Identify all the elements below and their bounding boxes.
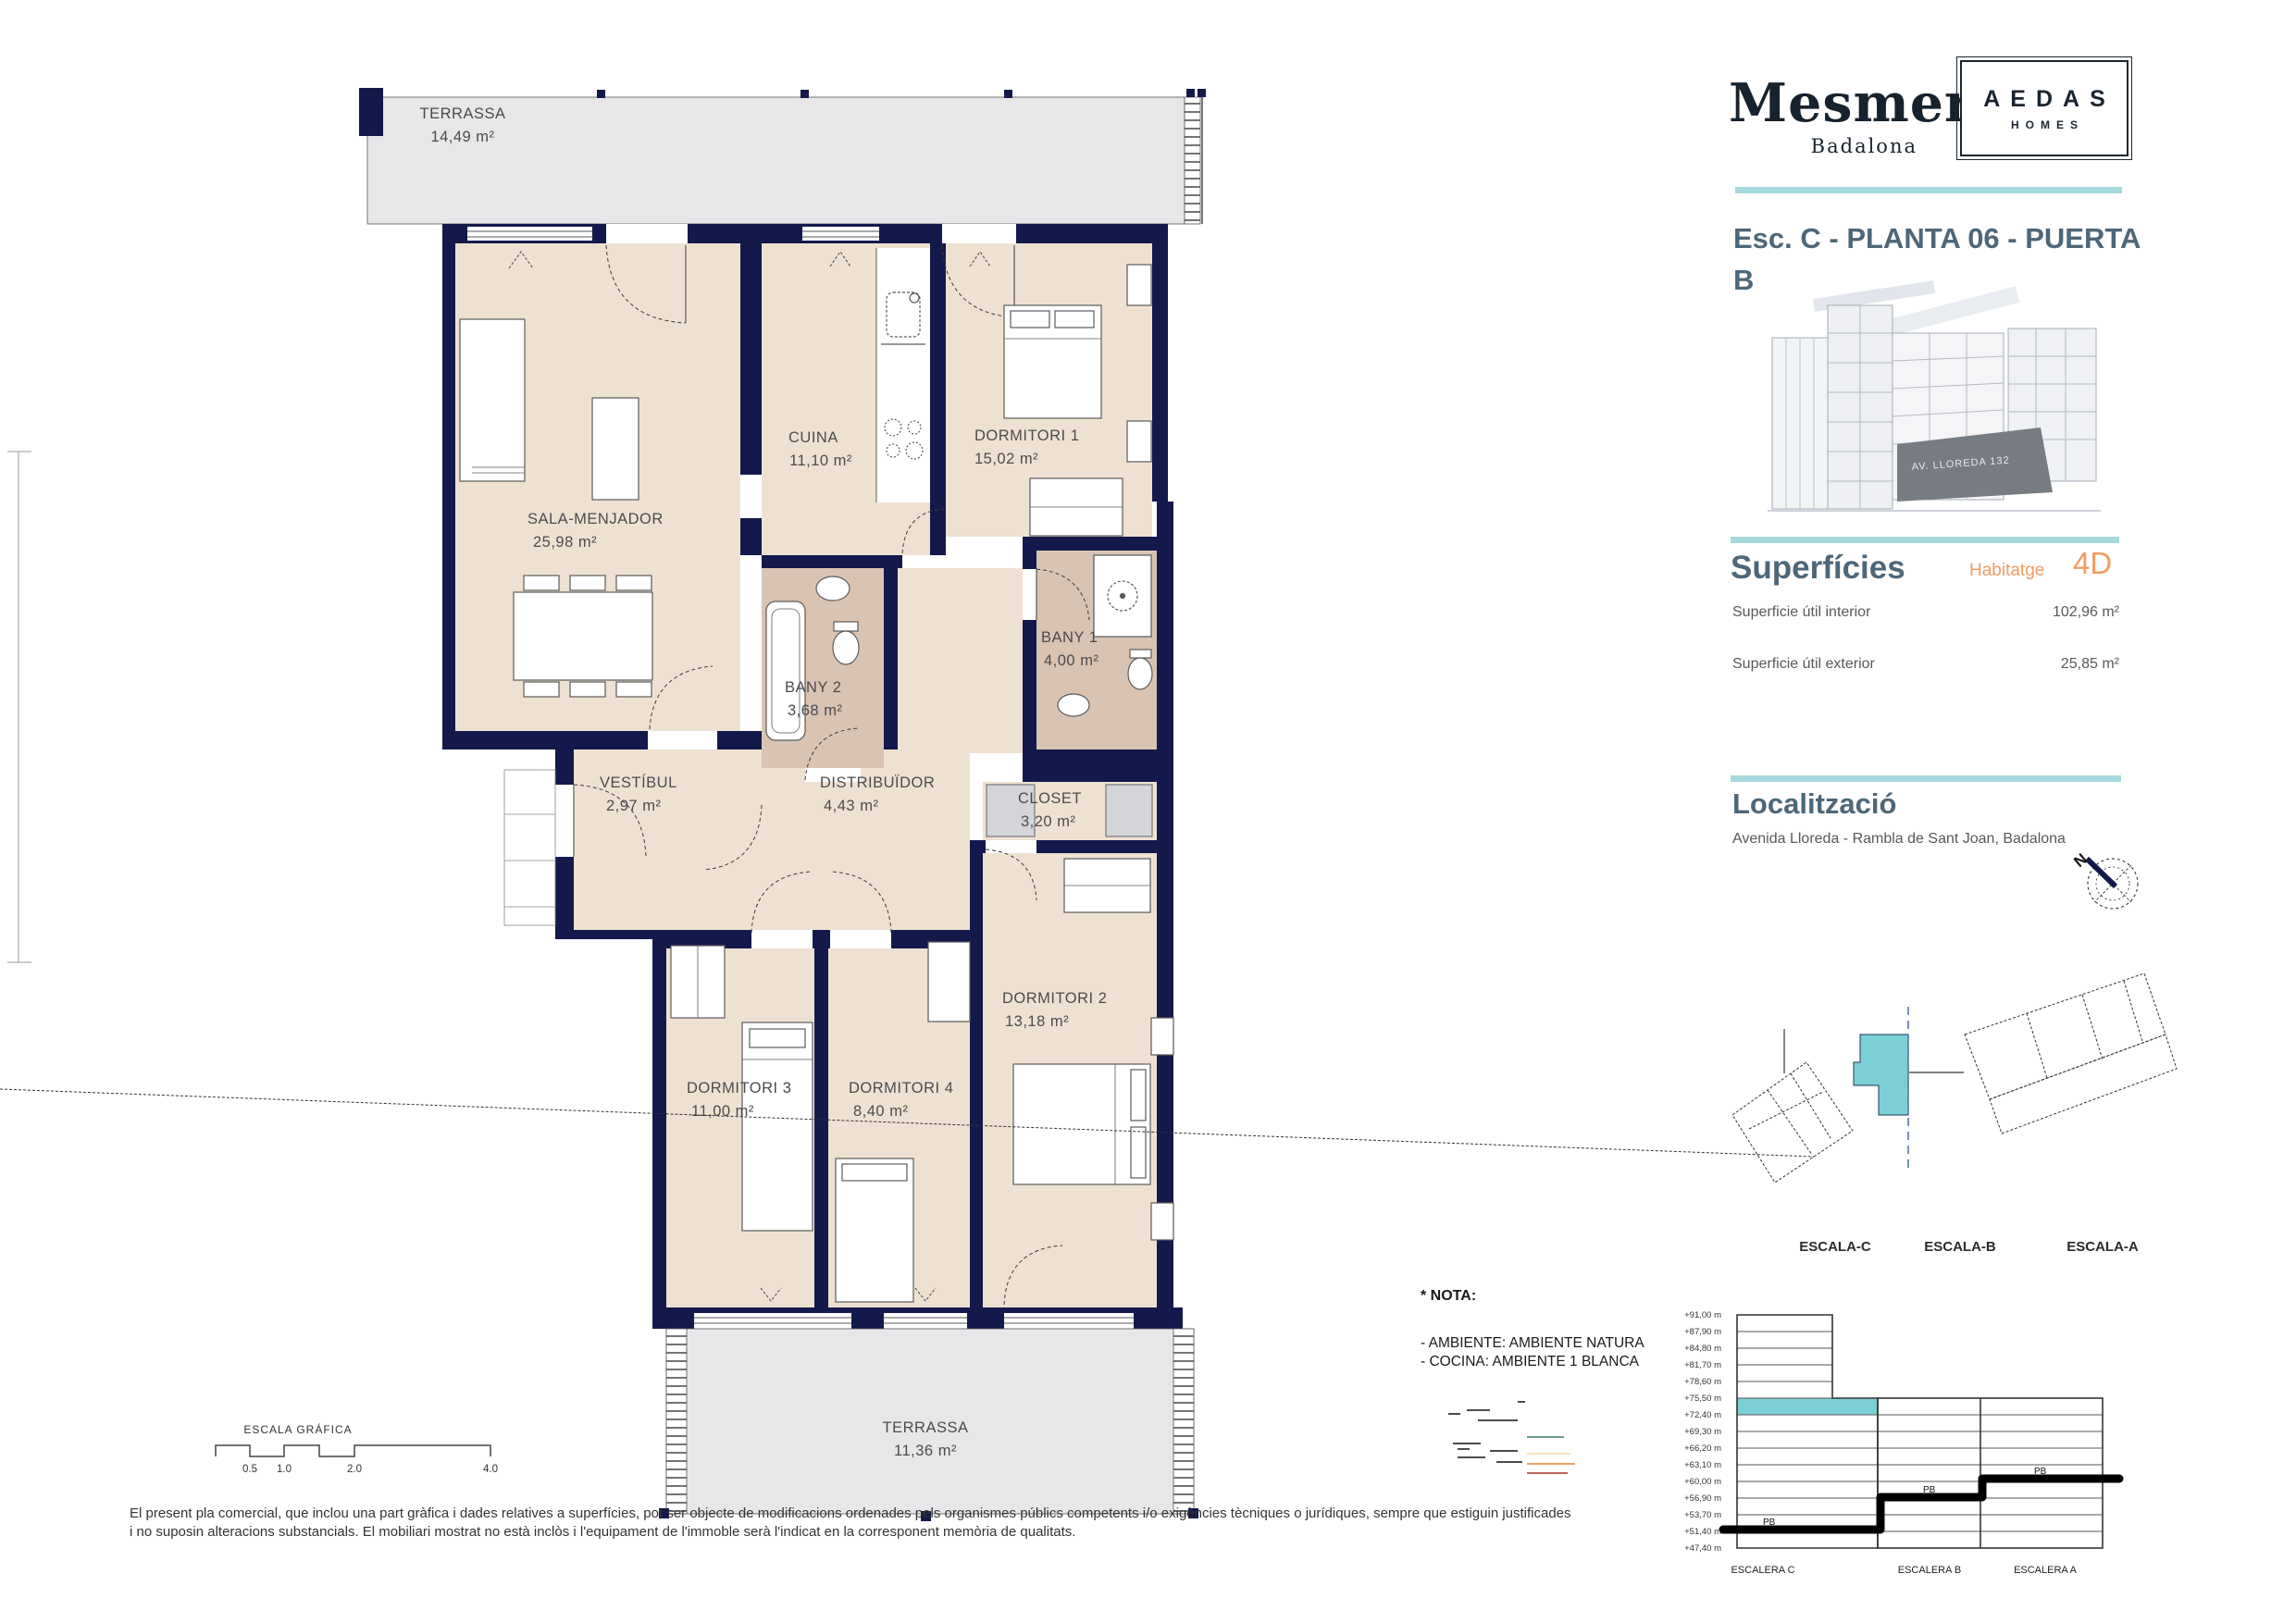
room-label-sala: SALA-MENJADOR <box>527 511 664 527</box>
room-label-closet: CLOSET <box>1018 790 1082 807</box>
superficies-row-exterior-label: Superficie útil exterior <box>1732 656 1875 673</box>
unit-type-value: 4D <box>2073 546 2112 581</box>
superficies-row-interior: Superficie útil interior 102,96 m² <box>1732 604 2119 621</box>
room-area-sala: 25,98 m² <box>533 534 597 551</box>
svg-text:+72,40 m: +72,40 m <box>1684 1410 1721 1420</box>
building-sketch: AV. LLOREDA 132 <box>1768 287 2101 511</box>
graphic-scale: ESCALA GRÁFICA 0.5 1.0 2.0 4.0 <box>216 1422 498 1475</box>
svg-text:+87,90 m: +87,90 m <box>1684 1327 1721 1337</box>
elevation-label-escalera-a: ESCALERA A <box>2014 1565 2078 1576</box>
brand-logo: Mesmer <box>1729 72 1973 134</box>
divider-rule-3 <box>1731 775 2121 782</box>
room-area-dormitori1: 15,02 m² <box>974 451 1038 467</box>
nota-heading: * NOTA: <box>1421 1288 1644 1305</box>
superficies-heading: Superfícies <box>1731 550 1905 587</box>
site-label-escala-b: ESCALA-B <box>1924 1239 1996 1255</box>
room-label-terrassa-bottom: TERRASSA <box>883 1419 969 1436</box>
room-area-terrassa-top: 14,49 m² <box>430 129 494 145</box>
aedas-logo: AEDAS HOMES <box>1960 60 2128 156</box>
pb-label-c: PB <box>1763 1518 1776 1528</box>
room-area-vestibul: 2,97 m² <box>606 798 661 814</box>
divider-rule-1 <box>1735 187 2122 193</box>
elevation-label-escalera-c: ESCALERA C <box>1731 1565 1794 1576</box>
elevation-diagram: +91,00 m +87,90 m +84,80 m +81,70 m +78,… <box>1684 1310 2119 1576</box>
compass-icon: N <box>2070 850 2138 909</box>
svg-text:+63,10 m: +63,10 m <box>1684 1460 1721 1470</box>
svg-text:+66,20 m: +66,20 m <box>1684 1443 1721 1454</box>
scale-tick-40: 4.0 <box>483 1464 498 1475</box>
brand-logo-text: Mesmer <box>1729 72 1973 134</box>
windows-bottom <box>694 1313 1134 1329</box>
compass-north-label: N <box>2070 850 2091 871</box>
room-area-bany2: 3,68 m² <box>788 702 842 719</box>
room-label-dormitori1: DORMITORI 1 <box>974 427 1079 444</box>
site-label-escala-c: ESCALA-C <box>1799 1239 1871 1255</box>
room-label-dormitori2: DORMITORI 2 <box>1002 990 1107 1007</box>
room-area-terrassa-bottom: 11,36 m² <box>894 1443 957 1459</box>
elevation-heights: +91,00 m +87,90 m +84,80 m +81,70 m +78,… <box>1684 1310 1721 1554</box>
svg-text:+60,00 m: +60,00 m <box>1684 1477 1721 1487</box>
nota-line-2: - COCINA: AMBIENTE 1 BLANCA <box>1421 1353 1644 1371</box>
svg-text:+78,60 m: +78,60 m <box>1684 1377 1721 1387</box>
graphic-scale-title: ESCALA GRÁFICA <box>243 1422 352 1436</box>
room-label-terrassa-top: TERRASSA <box>420 105 506 122</box>
site-label-escala-a: ESCALA-A <box>2066 1239 2139 1255</box>
svg-text:+47,40 m: +47,40 m <box>1684 1543 1721 1554</box>
room-area-bany1: 4,00 m² <box>1044 652 1098 669</box>
room-label-vestibul: VESTÍBUL <box>600 774 677 791</box>
scale-tick-10: 1.0 <box>277 1464 292 1475</box>
ground-level-line <box>1723 1479 2119 1530</box>
nota-line-1: - AMBIENTE: AMBIENTE NATURA <box>1421 1334 1644 1353</box>
room-label-cuina: CUINA <box>788 429 838 446</box>
legal-disclaimer: El present pla comercial, que inclou una… <box>130 1505 1573 1542</box>
pb-label-a: PB <box>2034 1467 2047 1477</box>
superficies-row-interior-value: 102,96 m² <box>2053 604 2119 621</box>
floorplan-sheet: TERRASSA 14,49 m² SALA-MENJADOR 25,98 m²… <box>0 0 2296 1623</box>
pb-label-b: PB <box>1923 1485 1936 1495</box>
page-title: Esc. C - PLANTA 06 - PUERTA B <box>1733 218 2141 302</box>
localitzacio-heading: Localització <box>1732 787 1896 821</box>
room-label-bany2: BANY 2 <box>785 679 841 696</box>
scale-tick-05: 0.5 <box>242 1464 257 1475</box>
divider-rule-2 <box>1731 537 2119 543</box>
localitzacio-address: Avenida Lloreda - Rambla de Sant Joan, B… <box>1732 831 2066 848</box>
room-label-distribuidor: DISTRIBUÏDOR <box>820 774 935 791</box>
room-area-distribuidor: 4,43 m² <box>824 798 878 814</box>
svg-text:+81,70 m: +81,70 m <box>1684 1360 1721 1370</box>
svg-text:+56,90 m: +56,90 m <box>1684 1493 1721 1504</box>
aedas-logo-line2: HOMES <box>2004 118 2084 131</box>
svg-text:+53,70 m: +53,70 m <box>1684 1510 1721 1520</box>
superficies-row-exterior-value: 25,85 m² <box>2061 656 2119 673</box>
unit-type-label: Habitatge <box>1969 561 2044 581</box>
scale-tick-20: 2.0 <box>347 1464 362 1475</box>
room-label-bany1: BANY 1 <box>1041 629 1098 646</box>
superficies-row-interior-label: Superficie útil interior <box>1732 604 1870 621</box>
svg-text:+51,40 m: +51,40 m <box>1684 1527 1721 1537</box>
room-area-closet: 3,20 m² <box>1021 813 1075 830</box>
nota-block: * NOTA: - AMBIENTE: AMBIENTE NATURA - CO… <box>1421 1288 1644 1371</box>
svg-text:+91,00 m: +91,00 m <box>1684 1310 1721 1320</box>
svg-text:+75,50 m: +75,50 m <box>1684 1394 1721 1404</box>
svg-text:+69,30 m: +69,30 m <box>1684 1427 1721 1437</box>
axis-lines <box>7 452 31 962</box>
room-area-dormitori4: 8,40 m² <box>853 1103 908 1120</box>
superficies-row-exterior: Superficie útil exterior 25,85 m² <box>1732 656 2119 673</box>
room-label-dormitori4: DORMITORI 4 <box>849 1080 953 1096</box>
map-fragment <box>1448 1402 1575 1473</box>
floor-plan: TERRASSA 14,49 m² SALA-MENJADOR 25,98 m²… <box>7 88 1206 1521</box>
room-area-cuina: 11,10 m² <box>789 452 852 469</box>
brand-city: Badalona <box>1786 135 1917 157</box>
room-area-dormitori2: 13,18 m² <box>1005 1013 1069 1030</box>
elevation-highlight-floor <box>1737 1398 1878 1415</box>
elevation-label-escalera-b: ESCALERA B <box>1898 1565 1961 1576</box>
aedas-logo-line1: AEDAS <box>1973 86 2116 113</box>
room-label-dormitori3: DORMITORI 3 <box>687 1080 791 1096</box>
svg-text:+84,80 m: +84,80 m <box>1684 1344 1721 1354</box>
